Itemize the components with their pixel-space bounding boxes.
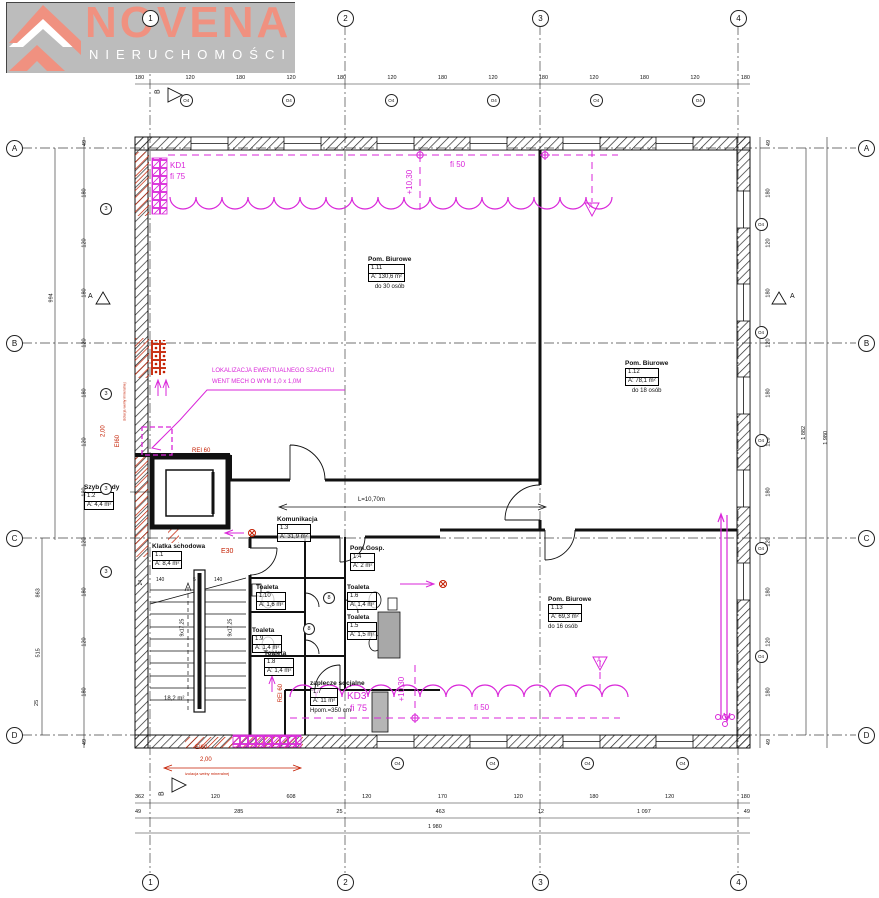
dim-value: 120	[589, 75, 598, 81]
dim-value: 608	[286, 794, 295, 800]
dim-right-total-1980: 1 980	[824, 431, 830, 445]
window-markers-top: O4O4O4O4O4O4	[135, 94, 750, 107]
section-letter-right: A	[790, 293, 795, 300]
grid-col-1-top: 1	[142, 10, 159, 27]
dim-value: 120	[82, 238, 88, 247]
fire-bottom-note: izolacja wełny mineralnej	[185, 772, 229, 776]
dim-value: 120	[286, 75, 295, 81]
wall-marker: 3	[100, 388, 112, 400]
rei60-stair: REI 60	[278, 684, 284, 702]
window-marker: O4	[755, 434, 768, 447]
wall-marker: 3	[100, 566, 112, 578]
room-label-toilet-1-10: Toaleta 1.10A: 1,6 m²	[256, 584, 286, 610]
dim-left-total-994: 994	[50, 293, 56, 302]
logo-brand: NOVENA	[85, 1, 291, 45]
detail-a-top: A	[589, 204, 593, 210]
room-label-1-12: Pom. Biurowe 1.12A: 78,1 m² do 18 osób	[625, 360, 668, 395]
grid-row-d-right: D	[858, 727, 875, 744]
room-label-toilet-1-6: Toaleta 1.6A: 1,4 m²	[347, 584, 377, 610]
dim-value: 12	[538, 809, 544, 815]
window-markers-right: O4O4O4O4O4	[755, 170, 767, 710]
stair-dim-140b: 140	[214, 578, 222, 583]
section-letter-left: A	[88, 293, 93, 300]
kd3-label: KD3	[347, 692, 366, 703]
dim-total-bottom: 1 980	[428, 825, 442, 831]
dim-value: 180	[438, 75, 447, 81]
grid-row-d-left: D	[6, 727, 23, 744]
dim-chain-left: 4918012018012018012018012018012018049	[80, 140, 90, 745]
dim-value: 180	[640, 75, 649, 81]
dim-value: 120	[82, 637, 88, 646]
dim-value: 120	[362, 794, 371, 800]
fi50-top: fi 50	[450, 161, 465, 169]
grid-row-c-right: C	[858, 530, 875, 547]
grid-row-a-right: A	[858, 140, 875, 157]
dim-chain-top: 180120180120180120180120180120180120180	[135, 75, 750, 81]
detail-a-bottom: A	[597, 658, 601, 664]
window-marker: O4	[755, 218, 768, 231]
grid-col-2-bottom: 2	[337, 874, 354, 891]
room-label-staircase: Klatka schodowa 1.1A: 8,4 m²	[152, 543, 205, 569]
stair-run-1: 9x17,25	[180, 619, 185, 637]
dim-value: 180	[135, 75, 144, 81]
door-marker: 8	[323, 592, 335, 604]
dim-value: 49	[82, 739, 88, 745]
fire-left-length: 2,00	[101, 425, 107, 437]
window-marker: O4	[282, 94, 295, 107]
dim-value: 180	[741, 75, 750, 81]
rei60-lift: REI 60	[192, 448, 210, 454]
window-marker: O4	[755, 326, 768, 339]
stairs	[150, 570, 246, 712]
dim-left-total-25: 25	[35, 700, 41, 706]
dim-value: 49	[766, 140, 772, 146]
window-markers-bottom: O4O4O4O4	[350, 757, 730, 770]
dim-left-total-515: 515	[37, 648, 43, 657]
kd3-fi-label: fi 75	[350, 704, 367, 713]
dim-value: 180	[741, 794, 750, 800]
dim-value: 120	[514, 794, 523, 800]
dim-value: 285	[234, 809, 243, 815]
level-bottom: +10,30	[398, 677, 406, 702]
fire-left-class: EI60	[115, 435, 121, 447]
dim-value: 180	[82, 188, 88, 197]
stair-dim-140a: 140	[156, 578, 164, 583]
dim-value: 120	[82, 338, 88, 347]
window-marker: O4	[755, 650, 768, 663]
dim-value: 120	[82, 438, 88, 447]
window-marker: O4	[385, 94, 398, 107]
window-marker: O4	[692, 94, 705, 107]
doors	[250, 445, 575, 690]
e30-label: E30	[221, 548, 233, 555]
stair-area: 18,2 m²	[164, 696, 184, 702]
window-marker: O4	[676, 757, 689, 770]
dim-value: 120	[665, 794, 674, 800]
dim-value: 180	[589, 794, 598, 800]
dim-chain-bottom-1: 362120608120170120180120180	[135, 794, 750, 800]
szacht-note-line2: WENT MECH O WYM 1,0 x 1,0M	[212, 379, 301, 385]
corridor-dim-line	[279, 504, 546, 510]
room-label-1-11: Pom. Biurowe 1.11A: 130,6 m² do 30 osób	[368, 256, 411, 291]
grid-row-c-left: C	[6, 530, 23, 547]
grid-row-a-left: A	[6, 140, 23, 157]
dim-value: 180	[82, 687, 88, 696]
dim-value: 1 097	[637, 809, 651, 815]
dim-value: 120	[211, 794, 220, 800]
dim-value: 180	[82, 588, 88, 597]
grid-col-3-bottom: 3	[532, 874, 549, 891]
window-marker: O4	[487, 94, 500, 107]
grid-row-b-left: B	[6, 335, 23, 352]
dim-value: 180	[539, 75, 548, 81]
dim-value: 180	[236, 75, 245, 81]
stair-dim-5: 5	[193, 578, 196, 583]
fire-bottom-length: 2,00	[200, 757, 212, 763]
dim-value: 120	[185, 75, 194, 81]
section-letter-top: B	[155, 89, 162, 94]
corridor-length: L=10,70m	[358, 497, 385, 503]
stair-run-2: 9x17,25	[228, 619, 233, 637]
section-letter-bottom: B	[159, 791, 166, 796]
fire-bottom-class: EI60	[195, 745, 207, 751]
fire-left-note: izolacja wełny mineralnej	[124, 382, 128, 421]
wall-marker: 3	[100, 483, 112, 495]
logo-house-icon	[7, 3, 85, 73]
szacht-note-line1: LOKALIZACJA EWENTUALNEGO SZACHTU	[212, 368, 334, 374]
revision-cloud-top	[170, 197, 612, 209]
dim-right-total-1882: 1 882	[802, 426, 808, 440]
window-marker: O4	[180, 94, 193, 107]
dim-left-total-863: 863	[37, 588, 43, 597]
room-label-corridor: Komunikacja 1.3A: 31,9 m²	[277, 516, 317, 542]
grid-col-1-bottom: 1	[142, 874, 159, 891]
room-label-utility: Pom.Gosp. 1.4A: 2 m²	[350, 545, 384, 571]
dim-value: 49	[766, 739, 772, 745]
room-label-1-13: Pom. Biurowe 1.13A: 69,3 m² do 16 osób	[548, 596, 591, 631]
window-marker: O4	[581, 757, 594, 770]
grid-col-2-top: 2	[337, 10, 354, 27]
window-marker: O4	[391, 757, 404, 770]
dim-value: 120	[488, 75, 497, 81]
kd1-fi-label: fi 75	[170, 173, 185, 181]
kd3-duct	[233, 735, 301, 747]
logo-subtitle: NIERUCHOMOŚCI	[89, 47, 292, 62]
door-marker: 8	[303, 623, 315, 635]
dim-value: 49	[135, 809, 141, 815]
window-marker: O4	[486, 757, 499, 770]
dim-value: 180	[82, 388, 88, 397]
interior-walls	[135, 150, 737, 735]
grid-col-4-top: 4	[730, 10, 747, 27]
outer-walls	[135, 137, 750, 748]
dim-value: 49	[744, 809, 750, 815]
dim-value: 120	[387, 75, 396, 81]
room-label-toilet-1-8: Toaleta 1.8A: 1,4 m²	[264, 650, 294, 676]
kd1-duct	[152, 158, 167, 214]
window-marker: O4	[590, 94, 603, 107]
grid-row-b-right: B	[858, 335, 875, 352]
dim-value: 120	[690, 75, 699, 81]
kd1-label: KD1	[170, 162, 186, 170]
dim-value: 120	[82, 538, 88, 547]
stair-dim-24: 24	[139, 580, 144, 586]
wall-marker: 3	[100, 203, 112, 215]
level-top: +10,30	[406, 170, 414, 195]
room-label-toilet-1-5: Toaleta 1.5A: 1,5 m²	[347, 614, 377, 640]
dim-value: 25	[336, 809, 342, 815]
grid-col-3-top: 3	[532, 10, 549, 27]
fi50-bottom: fi 50	[474, 704, 489, 712]
magenta-annotations	[142, 150, 735, 747]
dim-value: 463	[436, 809, 445, 815]
dim-value: 362	[135, 794, 144, 800]
dim-value: 180	[337, 75, 346, 81]
dim-value: 49	[82, 140, 88, 146]
dim-chain-bottom-2: 4928525463121 09749	[135, 809, 750, 815]
grid-col-4-bottom: 4	[730, 874, 747, 891]
floor-plan-sheet: NOVENA NIERUCHOMOŚCI 1 2 3 4 1 2 3 4 A B…	[0, 0, 879, 898]
window-marker: O4	[755, 542, 768, 555]
dim-value: 170	[438, 794, 447, 800]
